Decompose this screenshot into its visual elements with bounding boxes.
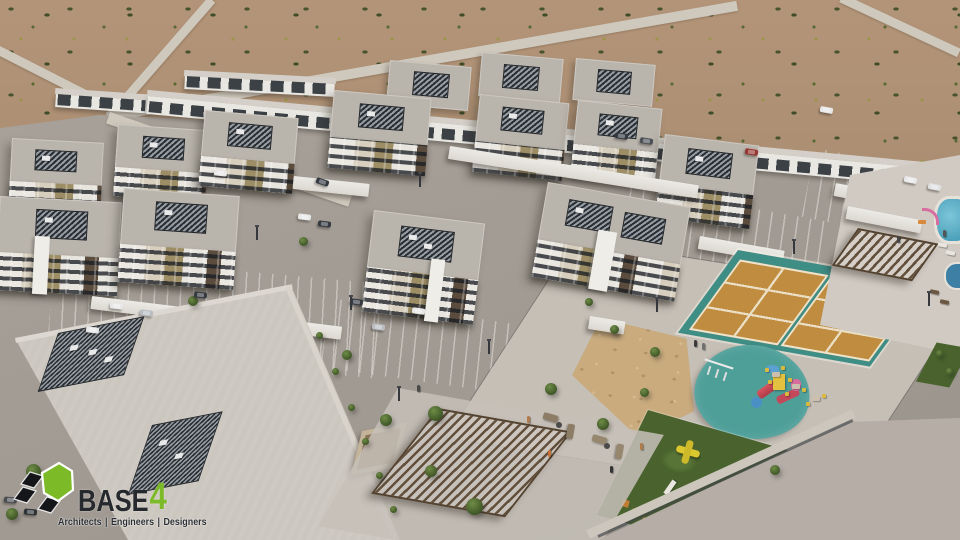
- logo-number: 4: [149, 478, 166, 516]
- apartment-building: [198, 110, 298, 194]
- bush: [946, 368, 953, 375]
- tagline-architects: Architects: [58, 516, 102, 528]
- tree: [342, 350, 352, 360]
- ac-unit: [423, 243, 432, 249]
- person: [417, 385, 420, 392]
- apartment-facade: [117, 244, 235, 290]
- logo-rhombus: [14, 487, 36, 503]
- rooftop-hvac-screen: [565, 198, 614, 233]
- tree: [640, 388, 649, 397]
- tree: [650, 347, 660, 357]
- ac-unit: [69, 344, 79, 351]
- bush: [316, 332, 323, 339]
- light-pole: [656, 299, 658, 312]
- ac-unit: [236, 129, 244, 135]
- person: [897, 236, 900, 243]
- yellow-chair: [822, 394, 826, 398]
- apartment-building: [362, 210, 486, 325]
- apartment-roof: [572, 58, 655, 107]
- ac-unit: [164, 210, 172, 216]
- apartment-facade: [0, 252, 119, 296]
- rooftop-hvac-screen: [596, 69, 632, 95]
- person: [640, 443, 643, 450]
- light-pole: [398, 388, 400, 401]
- ac-unit: [606, 120, 614, 126]
- tree: [610, 325, 619, 334]
- apartment-building: [327, 90, 431, 176]
- fire-pit: [604, 443, 610, 449]
- yellow-chair: [806, 402, 810, 406]
- tree: [545, 383, 557, 395]
- logo-hexagon: [42, 463, 73, 501]
- apartment-building: [0, 196, 122, 296]
- bush: [936, 350, 943, 357]
- yellow-chair: [785, 392, 789, 396]
- person: [548, 450, 551, 457]
- light-pole: [928, 293, 930, 306]
- ac-unit: [42, 155, 50, 160]
- car: [214, 169, 228, 176]
- bush: [332, 368, 339, 375]
- person: [527, 416, 530, 423]
- rooftop-hvac-screen: [397, 225, 455, 263]
- person: [610, 466, 613, 473]
- apartment-building: [117, 188, 239, 290]
- bush: [362, 438, 369, 445]
- rooftop-hvac-screen: [227, 122, 273, 149]
- dining-table: [812, 396, 820, 401]
- ac-unit: [695, 156, 704, 162]
- tree: [585, 298, 593, 306]
- tree: [428, 406, 443, 421]
- apartment-roof: [0, 196, 122, 261]
- ac-unit: [150, 143, 158, 149]
- ac-unit: [367, 111, 375, 117]
- rooftop-hvac-screen: [502, 64, 540, 91]
- rooftop-hvac-screen: [500, 107, 545, 135]
- person: [943, 230, 946, 237]
- base4-logo-mark: [13, 459, 77, 519]
- bush: [348, 404, 355, 411]
- rooftop-hvac-screen: [142, 136, 185, 160]
- water-slide: [918, 220, 926, 224]
- yellow-chair: [781, 366, 785, 370]
- light-pole: [793, 241, 795, 254]
- apartment-roof: [10, 138, 104, 187]
- ac-unit: [104, 356, 114, 363]
- dining-table: [772, 372, 780, 377]
- yellow-chair: [802, 388, 806, 392]
- yellow-chair: [765, 368, 769, 372]
- tagline-separator: |: [158, 516, 161, 528]
- fire-pit: [556, 422, 562, 428]
- tree: [380, 414, 392, 426]
- tree: [425, 465, 437, 477]
- spa-pool: [944, 262, 960, 290]
- ac-unit: [408, 234, 417, 240]
- base4-logo: BASE4 Architects | Engineers | Designers: [0, 440, 260, 540]
- dining-table: [792, 384, 800, 389]
- tagline-designers: Designers: [163, 516, 206, 528]
- tree: [597, 418, 609, 430]
- ac-unit: [575, 207, 584, 213]
- light-pole: [488, 341, 490, 354]
- tree: [299, 237, 308, 246]
- rooftop-hvac-screen: [412, 71, 450, 98]
- ac-unit: [88, 349, 98, 356]
- rooftop-hvac-screen: [154, 201, 208, 234]
- rooftop-hvac-screen: [358, 103, 405, 131]
- person: [694, 340, 697, 347]
- ac-unit: [45, 218, 53, 223]
- light-pole: [350, 297, 352, 310]
- bush: [390, 506, 397, 513]
- logo-tagline: Architects | Engineers | Designers: [58, 516, 207, 528]
- bush: [376, 472, 383, 479]
- tree: [770, 465, 780, 475]
- tagline-separator: |: [105, 516, 108, 528]
- person: [702, 343, 705, 350]
- apartment-roof: [120, 188, 240, 254]
- stair-tower: [32, 236, 51, 295]
- rooftop-hvac-screen: [685, 148, 733, 179]
- logo-word: BASE: [78, 485, 149, 516]
- rooftop-hvac-screen: [621, 212, 667, 245]
- ac-unit: [508, 113, 516, 119]
- rooftop-hvac-screen: [35, 149, 78, 173]
- tagline-engineers: Engineers: [111, 516, 154, 528]
- yellow-chair: [768, 380, 772, 384]
- light-pole: [419, 174, 421, 187]
- tree: [466, 498, 483, 515]
- yellow-chair: [788, 378, 792, 382]
- aerial-rendering: BASE4 Architects | Engineers | Designers: [0, 0, 960, 540]
- light-pole: [256, 227, 258, 240]
- play-dome: [751, 397, 762, 408]
- logo-rhombus: [21, 472, 43, 488]
